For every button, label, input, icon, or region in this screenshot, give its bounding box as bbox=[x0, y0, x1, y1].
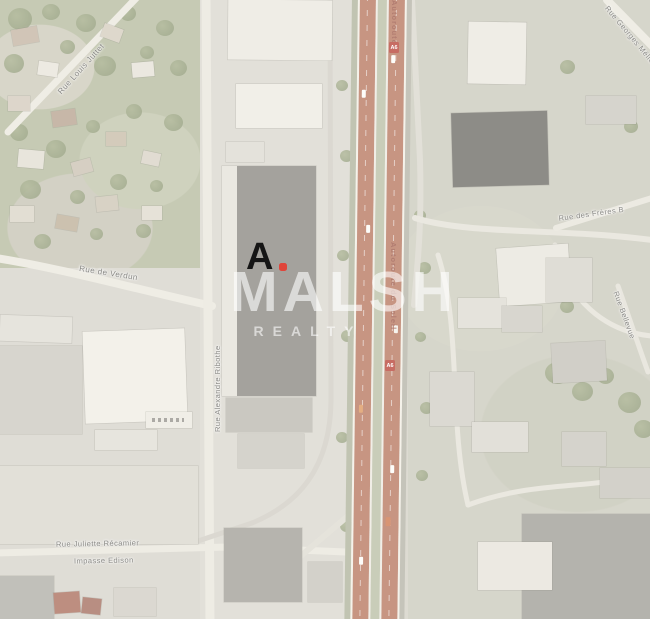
marker-letter: A bbox=[246, 238, 273, 276]
marker-red-dot-icon bbox=[279, 263, 287, 271]
vehicle bbox=[390, 465, 394, 473]
autoroute-label-top: Autoroute bbox=[390, 0, 399, 45]
street-label-alexandre: Rue Alexandre Ribothe bbox=[213, 345, 222, 432]
vehicle bbox=[359, 405, 363, 413]
rooftop-signage bbox=[152, 418, 184, 422]
autoroute-shield-badge: A6 bbox=[389, 42, 399, 53]
autoroute-shield-badge: A6 bbox=[385, 360, 395, 371]
vehicle bbox=[362, 90, 366, 98]
vehicle bbox=[391, 55, 395, 63]
vehicle bbox=[386, 517, 391, 526]
vehicle bbox=[366, 225, 370, 233]
malsh-watermark-division: REALTY bbox=[240, 324, 376, 338]
vehicle bbox=[359, 557, 363, 565]
map-canvas[interactable]: Autoroute A6 Autoroute du Soleil A6 Rue … bbox=[0, 0, 650, 619]
property-marker[interactable]: A bbox=[246, 238, 292, 280]
street-label-edison: Impasse Edison bbox=[74, 555, 134, 565]
street-label-recamier: Rue Juliette Récamier bbox=[56, 538, 139, 548]
